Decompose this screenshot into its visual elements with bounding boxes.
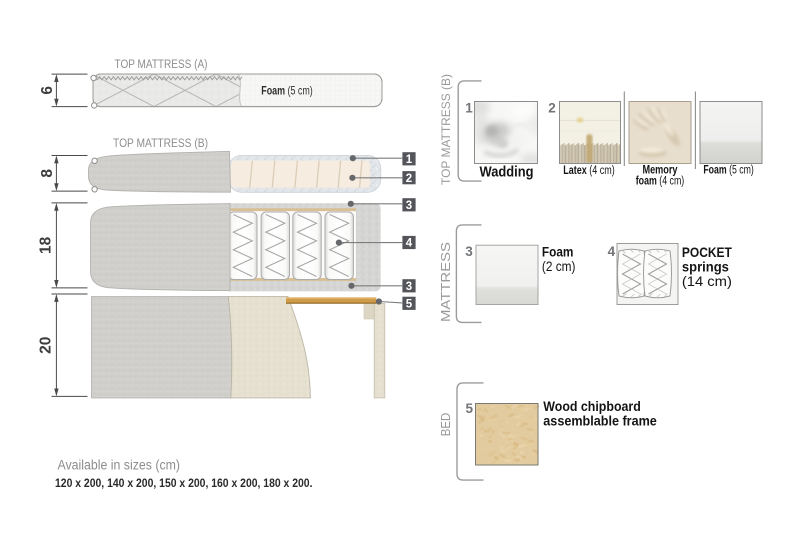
svg-text:18: 18 [38,236,55,254]
svg-text:TOP MATTRESS (B): TOP MATTRESS (B) [113,136,208,150]
svg-text:Wadding: Wadding [480,164,534,180]
svg-text:4: 4 [406,238,413,250]
svg-text:BED: BED [439,413,453,437]
svg-text:Foam: Foam [542,243,574,259]
svg-text:TOP MATTRESS (A): TOP MATTRESS (A) [115,57,208,71]
svg-text:20: 20 [38,337,55,354]
svg-text:8: 8 [39,169,56,178]
svg-text:2: 2 [548,100,556,115]
svg-text:(14 cm): (14 cm) [682,273,732,289]
svg-text:Available in sizes (cm): Available in sizes (cm) [58,458,181,473]
svg-text:4: 4 [608,244,616,259]
svg-text:120 x 200, 140 x 200, 150 x 20: 120 x 200, 140 x 200, 150 x 200, 160 x 2… [55,476,313,490]
svg-text:5: 5 [406,298,413,310]
svg-text:assemblable frame: assemblable frame [543,412,657,428]
svg-text:1: 1 [465,100,473,115]
svg-text:1: 1 [406,154,413,166]
svg-text:Latex (4 cm): Latex (4 cm) [563,163,615,177]
svg-text:POCKET: POCKET [682,244,732,260]
svg-text:3: 3 [406,281,412,293]
svg-text:Foam (5 cm): Foam (5 cm) [703,162,754,176]
svg-text:3: 3 [406,200,412,212]
svg-text:2: 2 [406,173,412,185]
svg-text:6: 6 [39,86,56,95]
svg-text:5: 5 [465,401,473,416]
svg-text:TOP MATTRESS (B): TOP MATTRESS (B) [440,74,453,185]
svg-text:Foam (5 cm): Foam (5 cm) [261,84,313,98]
svg-text:(2 cm): (2 cm) [542,258,576,274]
svg-text:MATTRESS: MATTRESS [439,242,453,322]
svg-text:foam (4 cm): foam (4 cm) [636,174,685,188]
svg-text:3: 3 [465,244,473,259]
